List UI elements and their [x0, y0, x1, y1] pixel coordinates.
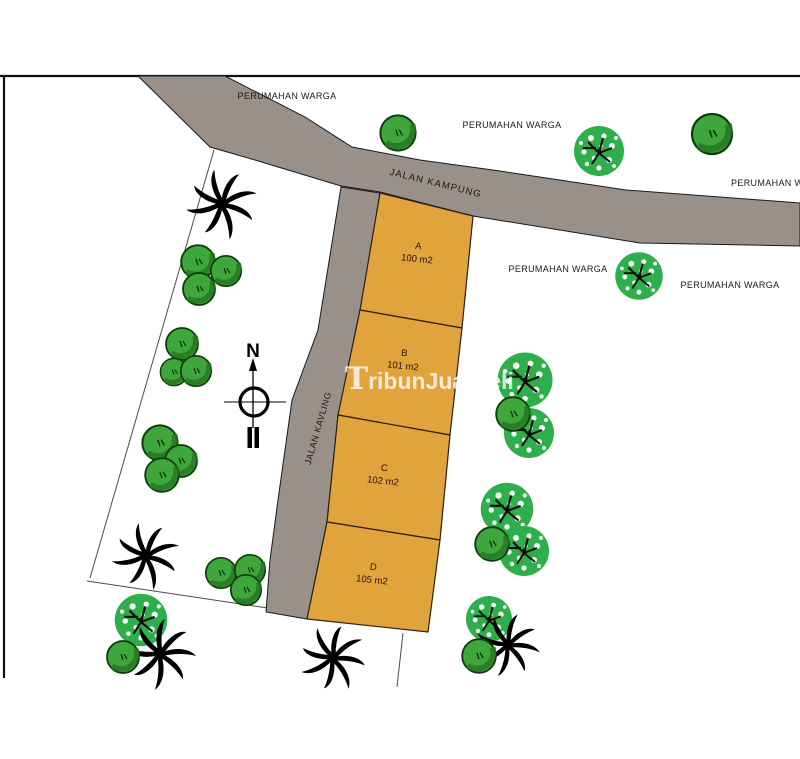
bush-tree-icon	[462, 639, 496, 673]
plot-D[interactable]: D 105 m2	[307, 522, 440, 632]
plot-B-id: B	[401, 348, 408, 360]
bush-tree-icon	[692, 114, 732, 154]
bush-tree-icon	[211, 256, 241, 286]
area-label-perumahan-warga-4: PERUMAHAN WARGA	[509, 264, 608, 274]
bush-tree-icon	[231, 575, 261, 605]
compass-south-bar-right	[255, 427, 260, 448]
plot-A[interactable]: A 100 m2	[360, 193, 473, 328]
bush-tree-icon	[496, 397, 530, 431]
speckled-tree-icon	[615, 252, 663, 300]
compass-south-bar-left	[248, 427, 253, 448]
bush-tree-icon	[183, 273, 215, 305]
area-label-perumahan-warga-5: PERUMAHAN WARGA	[681, 280, 780, 290]
bush-tree-icon	[145, 458, 179, 492]
site-plan-drawing: A 100 m2 B 101 m2 C 102 m2 D 105 m2	[0, 0, 800, 759]
plot-C-id: C	[380, 463, 388, 475]
watermark-initial: T	[345, 361, 368, 397]
bush-tree-icon	[181, 356, 211, 386]
bush-tree-icon	[380, 115, 415, 150]
bush-tree-icon	[107, 641, 139, 673]
area-label-perumahan-warga-1: PERUMAHAN WARGA	[238, 91, 337, 101]
area-label-perumahan-warga-2: PERUMAHAN WARGA	[463, 120, 562, 130]
watermark-rest: ribunJualBeli	[368, 368, 514, 394]
plot-D-id: D	[369, 562, 377, 574]
site-plan-canvas: A 100 m2 B 101 m2 C 102 m2 D 105 m2	[0, 0, 800, 759]
bush-tree-icon	[475, 527, 509, 561]
area-label-perumahan-warga-3: PERUMAHAN WARGA	[731, 178, 800, 188]
speckled-tree-icon	[574, 126, 624, 176]
plot-C[interactable]: C 102 m2	[327, 415, 450, 540]
speckled-tree-icon	[466, 596, 512, 642]
